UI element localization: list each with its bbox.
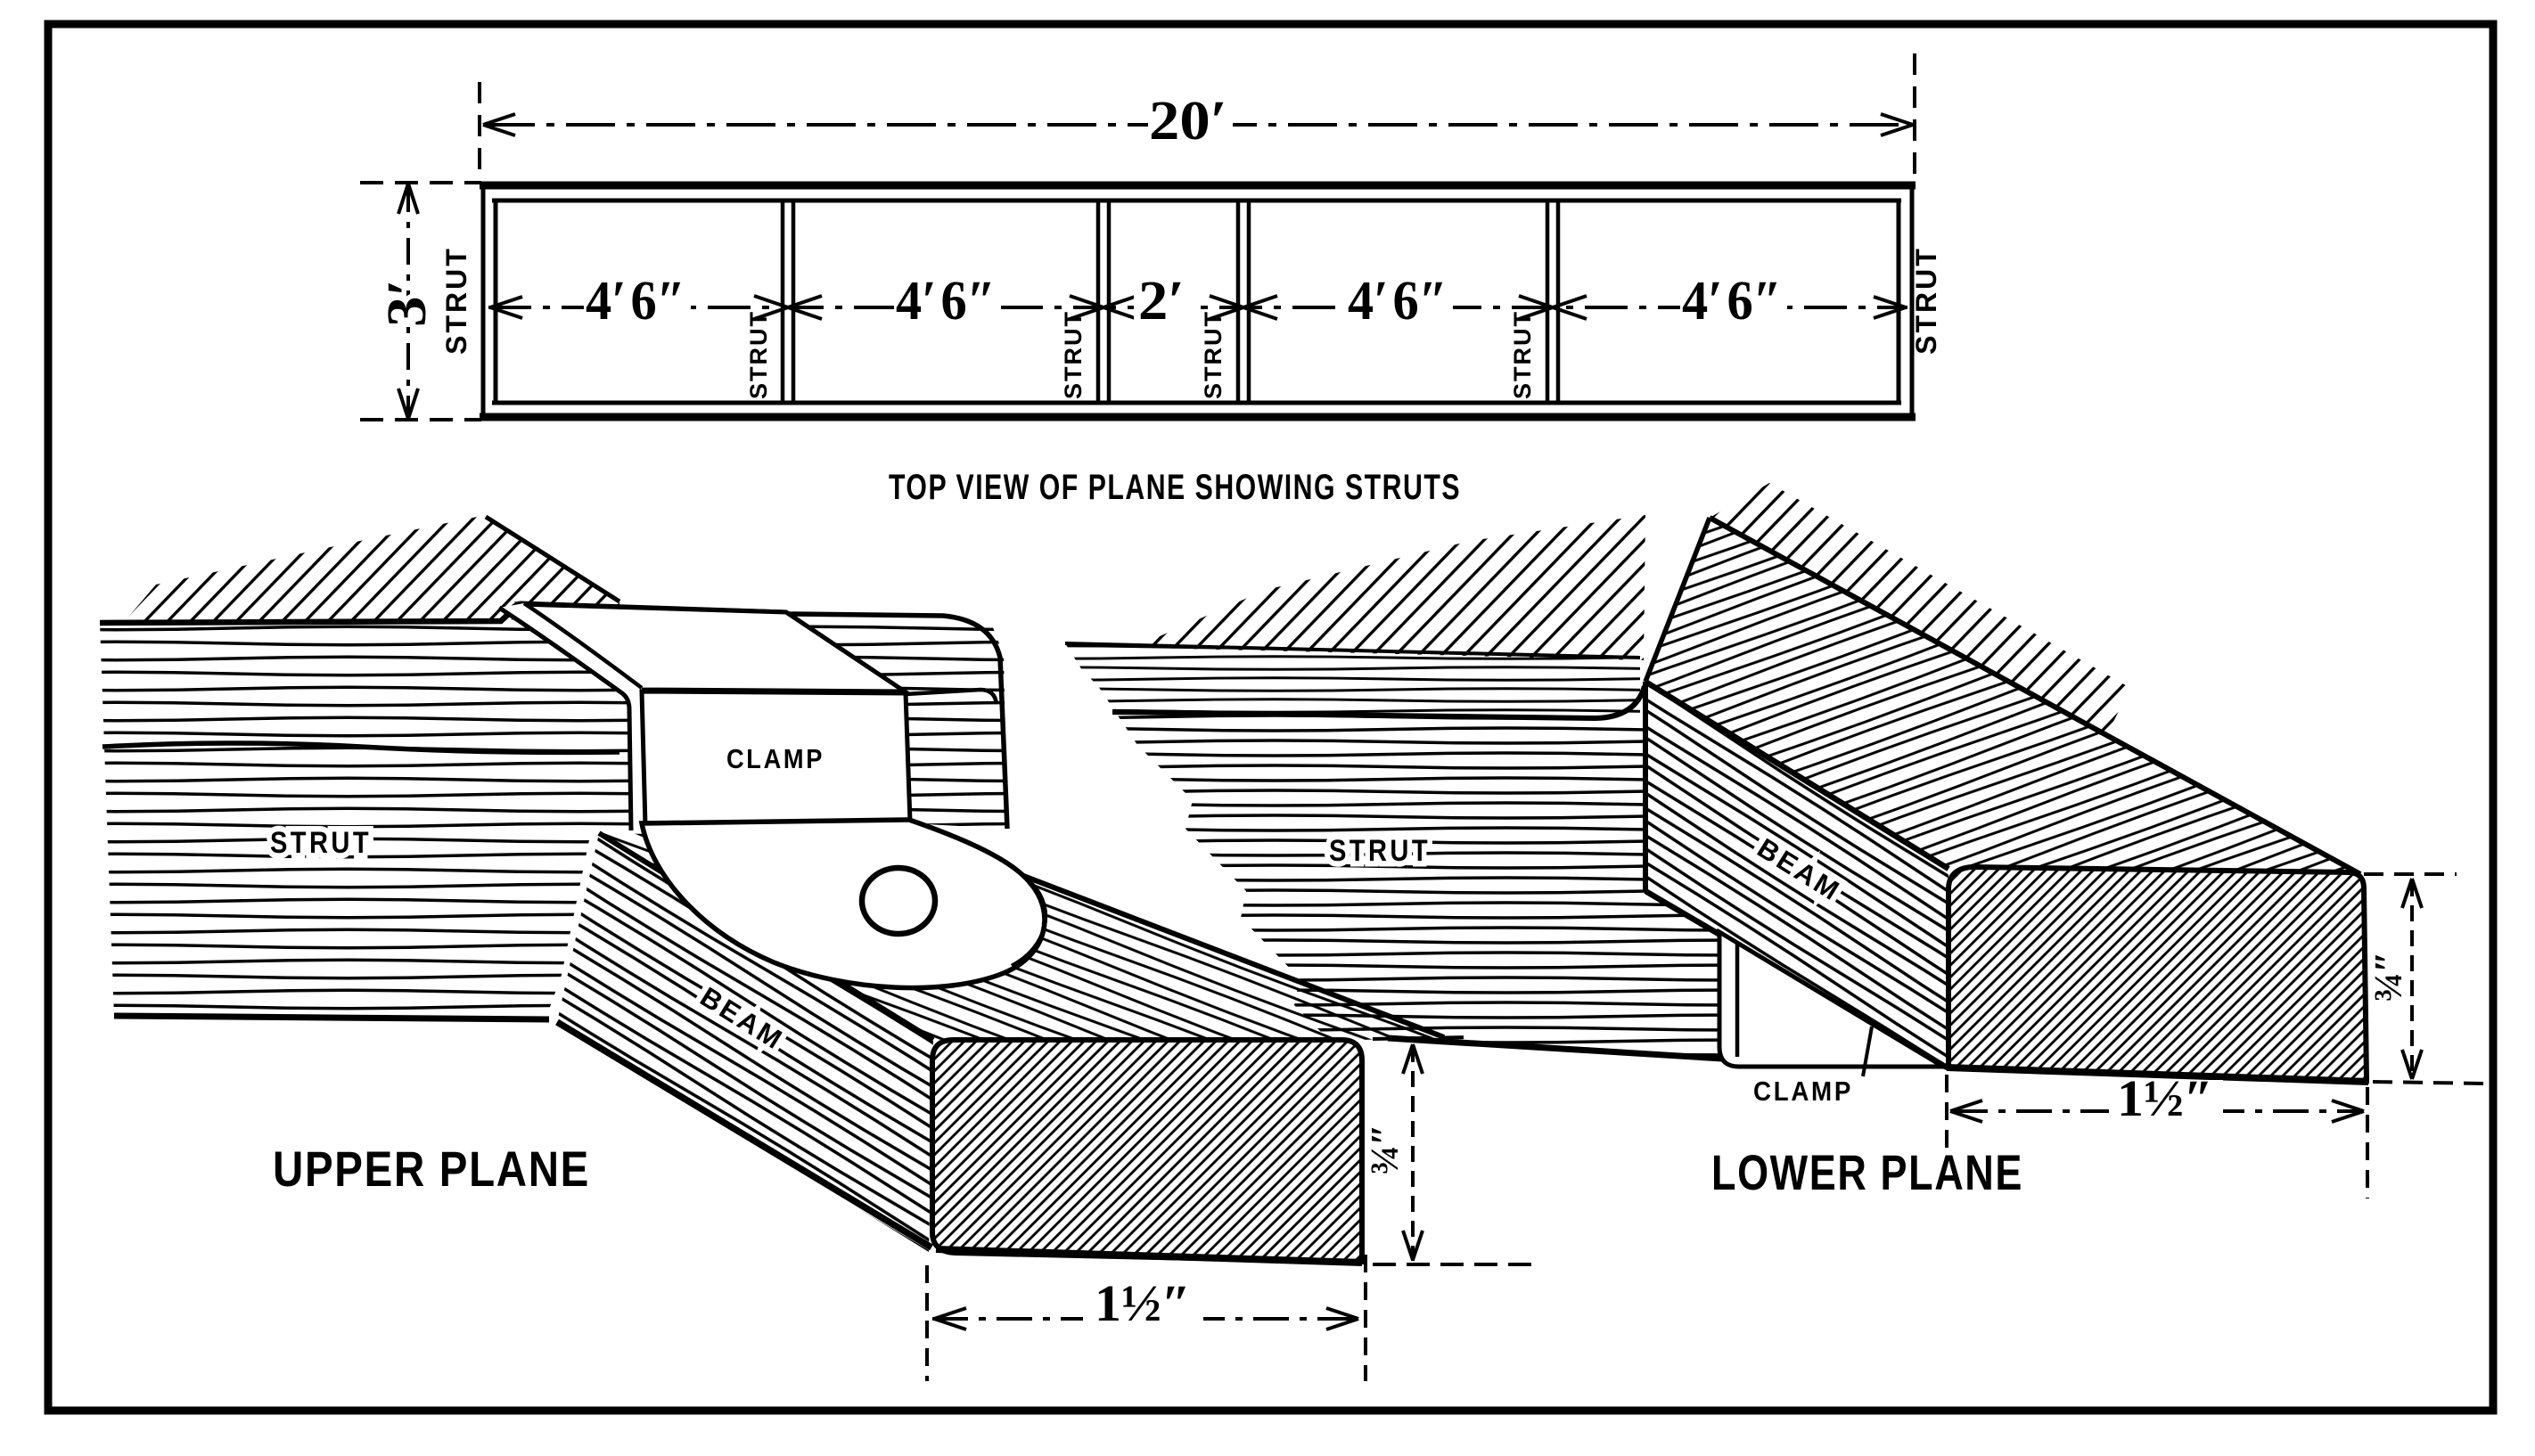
svg-text:2′: 2′: [1138, 271, 1185, 331]
svg-text:STRUT: STRUT: [1060, 310, 1087, 399]
svg-text:STRUT: STRUT: [1910, 246, 1942, 355]
svg-text:TOP VIEW OF PLANE SHOWING STRU: TOP VIEW OF PLANE SHOWING STRUTS: [889, 468, 1461, 507]
svg-text:STRUT: STRUT: [270, 826, 372, 860]
svg-text:UPPER PLANE: UPPER PLANE: [273, 1141, 590, 1197]
svg-text:3′: 3′: [377, 279, 438, 327]
svg-text:STRUT: STRUT: [440, 246, 472, 355]
svg-text:STRUT: STRUT: [1329, 834, 1431, 868]
svg-text:4′ 6″: 4′ 6″: [1682, 271, 1782, 331]
svg-text:4′ 6″: 4′ 6″: [1348, 271, 1448, 331]
svg-text:STRUT: STRUT: [745, 310, 772, 399]
svg-text:¾″: ¾″: [2367, 951, 2410, 1002]
svg-text:STRUT: STRUT: [1200, 310, 1226, 399]
svg-text:¾″: ¾″: [1363, 1124, 1407, 1174]
svg-text:20′: 20′: [1149, 91, 1227, 151]
svg-text:4′ 6″: 4′ 6″: [586, 271, 685, 331]
svg-text:1½″: 1½″: [1095, 1274, 1191, 1332]
svg-text:4′ 6″: 4′ 6″: [896, 271, 996, 331]
svg-text:LOWER PLANE: LOWER PLANE: [1711, 1144, 2023, 1200]
svg-text:STRUT: STRUT: [1509, 310, 1536, 399]
svg-text:1½″: 1½″: [2117, 1069, 2213, 1127]
svg-text:CLAMP: CLAMP: [1753, 1076, 1853, 1107]
svg-text:CLAMP: CLAMP: [726, 743, 824, 774]
